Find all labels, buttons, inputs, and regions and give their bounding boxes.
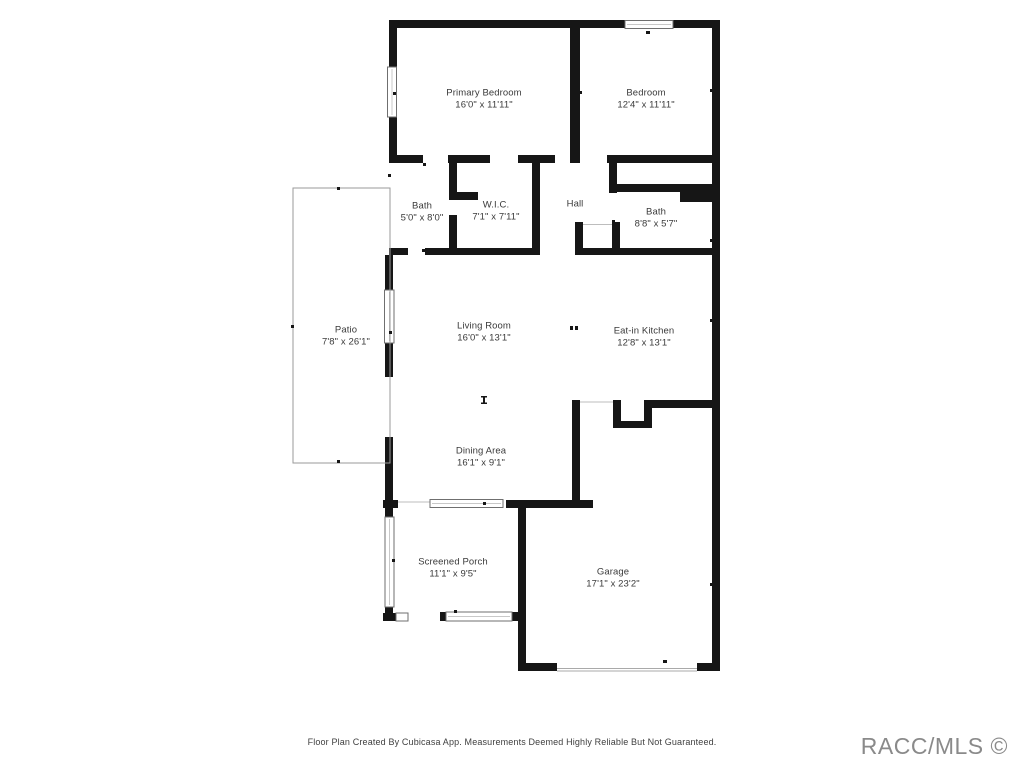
room-name: Primary Bedroom	[446, 88, 521, 100]
room-dims: 16'1" x 9'1"	[456, 457, 506, 469]
room-name: Screened Porch	[418, 557, 488, 569]
room-name: Hall	[567, 198, 584, 210]
room-label-patio: Patio 7'8" x 26'1"	[322, 325, 370, 348]
room-label-screened-porch: Screened Porch 11'1" x 9'5"	[418, 557, 488, 580]
room-dims: 7'8" x 26'1"	[322, 336, 370, 348]
living-dining-walls	[383, 255, 593, 508]
floor-plan-page: Primary Bedroom 16'0" x 11'11" Bedroom 1…	[0, 0, 1024, 768]
room-label-primary-bedroom: Primary Bedroom 16'0" x 11'11"	[446, 88, 521, 111]
room-name: Bath	[635, 207, 678, 219]
room-dims: 16'0" x 11'11"	[446, 99, 521, 111]
room-dims: 12'4" x 11'11"	[617, 99, 674, 111]
room-label-hall: Hall	[567, 198, 584, 210]
room-label-eat-in-kitchen: Eat-in Kitchen 12'8" x 13'1"	[614, 326, 675, 349]
room-dims: 7'1" x 7'11"	[472, 211, 519, 223]
windows	[385, 21, 674, 622]
room-name: Bath	[401, 201, 444, 213]
room-name: Bedroom	[617, 88, 674, 100]
room-dims: 8'8" x 5'7"	[635, 218, 678, 230]
room-label-bedroom: Bedroom 12'4" x 11'11"	[617, 88, 674, 111]
room-dims: 11'1" x 9'5"	[418, 568, 488, 580]
room-name: W.I.C.	[472, 200, 519, 212]
room-name: Dining Area	[456, 446, 506, 458]
room-label-garage: Garage 17'1" x 23'2"	[586, 567, 639, 590]
mls-watermark: RACC/MLS ©	[861, 733, 1008, 760]
floor-plan-drawing	[0, 0, 1024, 768]
room-dims: 5'0" x 8'0"	[401, 212, 444, 224]
room-name: Eat-in Kitchen	[614, 326, 675, 338]
room-dims: 12'8" x 13'1"	[614, 337, 675, 349]
footer-disclaimer: Floor Plan Created By Cubicasa App. Meas…	[308, 737, 717, 747]
room-dims: 17'1" x 23'2"	[586, 578, 639, 590]
room-label-living-room: Living Room 16'0" x 13'1"	[457, 321, 511, 344]
room-label-bath-1: Bath 5'0" x 8'0"	[401, 201, 444, 224]
room-label-bath-2: Bath 8'8" x 5'7"	[635, 207, 678, 230]
room-name: Patio	[322, 325, 370, 337]
room-name: Living Room	[457, 321, 511, 333]
room-dims: 16'0" x 13'1"	[457, 332, 511, 344]
kitchen-garage-walls	[518, 400, 720, 671]
room-label-dining-area: Dining Area 16'1" x 9'1"	[456, 446, 506, 469]
room-name: Garage	[586, 567, 639, 579]
room-label-wic: W.I.C. 7'1" x 7'11"	[472, 200, 519, 223]
